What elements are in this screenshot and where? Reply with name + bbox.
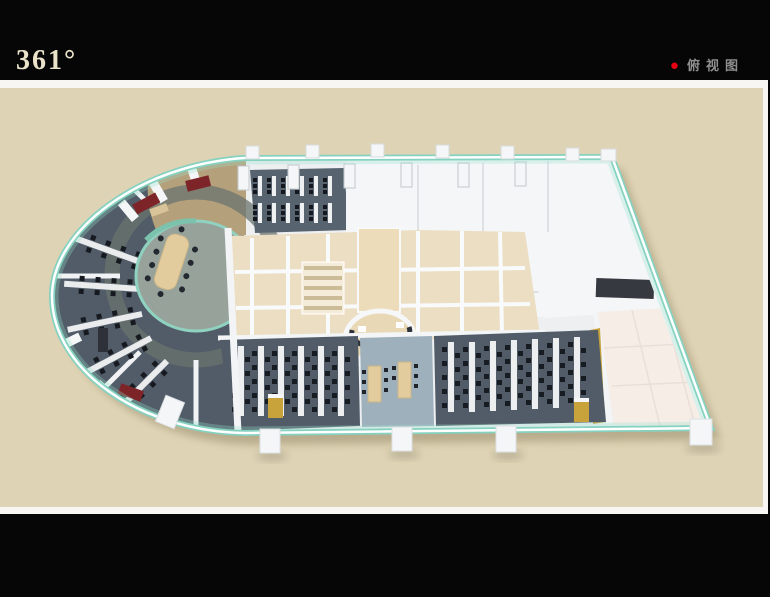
floorplan-3d-render [0, 0, 770, 597]
staircase [302, 262, 344, 314]
central-corridor [358, 228, 400, 312]
red-bullet-icon: ● [670, 58, 679, 73]
brand-logo: 361° [16, 45, 77, 77]
meeting-tables-bay [360, 336, 434, 427]
view-label: 俯视图 [687, 59, 744, 72]
top-black-bar: 361° ● 俯视图 [0, 0, 770, 80]
open-office-right [434, 330, 606, 426]
presentation-slide: 361° ● 俯视图 [0, 0, 770, 597]
view-indicator: ● 俯视图 [670, 58, 744, 73]
